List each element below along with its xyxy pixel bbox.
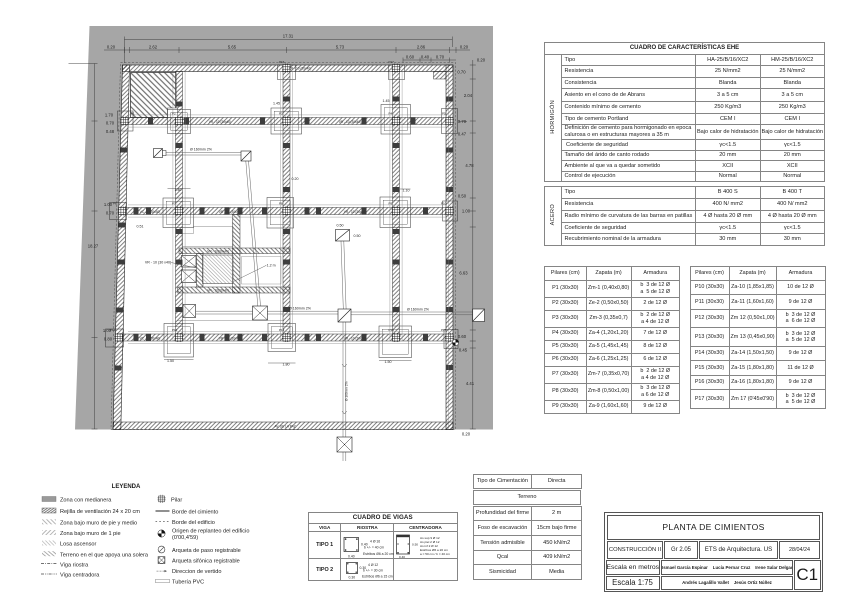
svg-text:Zona con medianera: Zona con medianera: [60, 498, 112, 504]
svg-text:Viga centradora: Viga centradora: [60, 573, 100, 579]
svg-text:Rejilla de ventilación 24 x 20: Rejilla de ventilación 24 x 20 cm: [60, 509, 140, 515]
svg-text:Ø 160mm 2%: Ø 160mm 2%: [289, 307, 312, 311]
svg-text:0.45: 0.45: [459, 348, 468, 353]
svg-text:Viga riostra: Viga riostra: [60, 562, 89, 568]
svg-text:0.60: 0.60: [458, 334, 467, 339]
svg-text:Borde del edificio: Borde del edificio: [172, 520, 215, 526]
svg-text:0.70: 0.70: [458, 119, 467, 124]
svg-text:Terreno en el que apoya una so: Terreno en el que apoya una solera: [60, 552, 149, 558]
svg-text:VR - 10 (30x40): VR - 10 (30x40): [344, 337, 367, 341]
svg-text:VC: VC: [423, 210, 428, 214]
svg-text:0.51: 0.51: [137, 225, 144, 229]
svg-text:VR - 10 (30x40): VR - 10 (30x40): [209, 120, 232, 124]
svg-text:18.27: 18.27: [88, 244, 99, 249]
svg-text:0.20: 0.20: [462, 432, 471, 437]
svg-text:Origen de replanteo del edific: Origen de replanteo del edificio: [172, 529, 249, 535]
svg-text:AV. DE LA PAZ: AV. DE LA PAZ: [274, 425, 295, 429]
svg-text:P4: P4: [389, 112, 393, 116]
svg-text:5.73: 5.73: [336, 45, 345, 50]
svg-text:Tubería PVC: Tubería PVC: [172, 580, 204, 586]
svg-text:Arqueta sifónica registrable: Arqueta sifónica registrable: [172, 559, 240, 565]
svg-text:Arqueta de paso registrable: Arqueta de paso registrable: [172, 548, 241, 554]
svg-text:a = 50 cm / b = 40 cm: a = 50 cm / b = 40 cm: [420, 552, 450, 556]
svg-text:VR - 10 (30x40): VR - 10 (30x40): [219, 210, 242, 214]
svg-text:0.30: 0.30: [360, 566, 367, 570]
svg-text:0.70: 0.70: [457, 70, 466, 75]
svg-text:0.60: 0.60: [406, 54, 415, 59]
svg-text:0.70: 0.70: [106, 210, 115, 215]
svg-text:0.50: 0.50: [354, 234, 361, 238]
svg-text:1.00: 1.00: [103, 328, 112, 333]
svg-text:4.78: 4.78: [465, 163, 474, 168]
svg-text:VR - 10 (30x40): VR - 10 (30x40): [289, 67, 312, 71]
svg-text:2.62: 2.62: [149, 45, 158, 50]
svg-text:VR - 10 (30 x40): VR - 10 (30 x40): [145, 261, 171, 265]
svg-text:0.40: 0.40: [348, 555, 355, 559]
svg-text:0.47: 0.47: [458, 132, 467, 137]
svg-text:VR - 10(30x40): VR - 10(30x40): [207, 250, 229, 254]
svg-text:VR - 10 (30x40): VR - 10 (30x40): [344, 210, 367, 214]
svg-text:P1: P1: [131, 112, 135, 116]
svg-text:VR - 10(30x40): VR - 10(30x40): [207, 289, 229, 293]
svg-text:P2: P2: [172, 112, 176, 116]
svg-text:4.41: 4.41: [466, 381, 475, 386]
svg-text:P16: P16: [279, 60, 285, 64]
svg-text:0.30: 0.30: [349, 576, 356, 580]
svg-text:P15: P15: [441, 328, 447, 332]
svg-text:1.70: 1.70: [105, 113, 114, 118]
svg-text:P6: P6: [113, 202, 117, 206]
svg-text:Zona bajo muro de pie y medio: Zona bajo muro de pie y medio: [60, 521, 137, 527]
svg-text:P9: P9: [389, 202, 393, 206]
svg-text:-1.2 m: -1.2 m: [265, 264, 275, 268]
svg-text:1.00: 1.00: [104, 202, 113, 207]
svg-text:0.70: 0.70: [106, 120, 115, 125]
svg-text:Direccion de vertido: Direccion de vertido: [172, 569, 221, 575]
svg-text:Ø 160mm 2%: Ø 160mm 2%: [190, 148, 213, 152]
svg-text:4 Ø 12: 4 Ø 12: [368, 563, 378, 567]
svg-text:0.20: 0.20: [107, 45, 116, 50]
svg-text:P14: P14: [389, 328, 395, 332]
svg-text:VR - 10 (30x40): VR - 10 (30x40): [339, 120, 362, 124]
svg-text:2.86: 2.86: [417, 45, 426, 50]
svg-text:1.45: 1.45: [383, 99, 390, 103]
svg-text:P17: P17: [389, 60, 395, 64]
svg-text:1.00: 1.00: [462, 209, 471, 214]
svg-text:0.20: 0.20: [292, 177, 299, 181]
svg-text:0.20: 0.20: [460, 45, 469, 50]
svg-text:Pilar: Pilar: [171, 498, 182, 504]
svg-text:Ø 160mm 2%: Ø 160mm 2%: [345, 381, 349, 401]
svg-text:6.63: 6.63: [459, 271, 468, 276]
svg-text:Ø 160mm 2%: Ø 160mm 2%: [407, 308, 430, 312]
svg-text:Losa ascensor: Losa ascensor: [60, 542, 97, 548]
svg-text:2.04: 2.04: [464, 93, 473, 98]
svg-text:Zona bajo muro de 1 pie: Zona bajo muro de 1 pie: [60, 531, 121, 537]
svg-text:VC - 1 (30x40): VC - 1 (30x40): [140, 337, 161, 341]
svg-text:1.45: 1.45: [273, 102, 280, 106]
svg-text:0.40: 0.40: [361, 543, 368, 547]
svg-text:P7: P7: [172, 202, 176, 206]
svg-text:VR - 10 (30x40): VR - 10 (30x40): [219, 337, 242, 341]
svg-text:LEYENDA: LEYENDA: [112, 484, 141, 490]
svg-text:Borde del cimiento: Borde del cimiento: [172, 510, 218, 516]
svg-text:17.31: 17.31: [283, 34, 294, 39]
svg-text:0.40: 0.40: [399, 555, 405, 559]
svg-text:0.20: 0.20: [477, 58, 486, 63]
svg-text:0.40: 0.40: [421, 54, 430, 59]
svg-text:0.70: 0.70: [436, 54, 445, 59]
svg-text:P10: P10: [441, 202, 447, 206]
svg-text:(0'00,4'59): (0'00,4'59): [172, 535, 198, 541]
svg-text:Estribos Ø6 a 20 cm: Estribos Ø6 a 20 cm: [363, 552, 394, 556]
svg-text:P13: P13: [279, 328, 285, 332]
svg-text:P8: P8: [279, 202, 283, 206]
svg-text:P3: P3: [279, 112, 283, 116]
svg-text:P5: P5: [442, 112, 446, 116]
svg-text:0.50: 0.50: [337, 224, 344, 228]
svg-text:P12: P12: [172, 328, 178, 332]
svg-text:4 Ø 16: 4 Ø 16: [370, 540, 380, 544]
svg-text:0.80: 0.80: [104, 337, 113, 342]
svg-text:0.50: 0.50: [412, 543, 418, 547]
svg-text:Estribos Ø6 a 15 cm: Estribos Ø6 a 15 cm: [362, 575, 393, 579]
svg-text:5.65: 5.65: [228, 45, 237, 50]
svg-text:0.50: 0.50: [458, 194, 467, 199]
svg-text:0.48: 0.48: [106, 129, 115, 134]
svg-text:VC - 1 (30x40): VC - 1 (30x40): [140, 210, 161, 214]
